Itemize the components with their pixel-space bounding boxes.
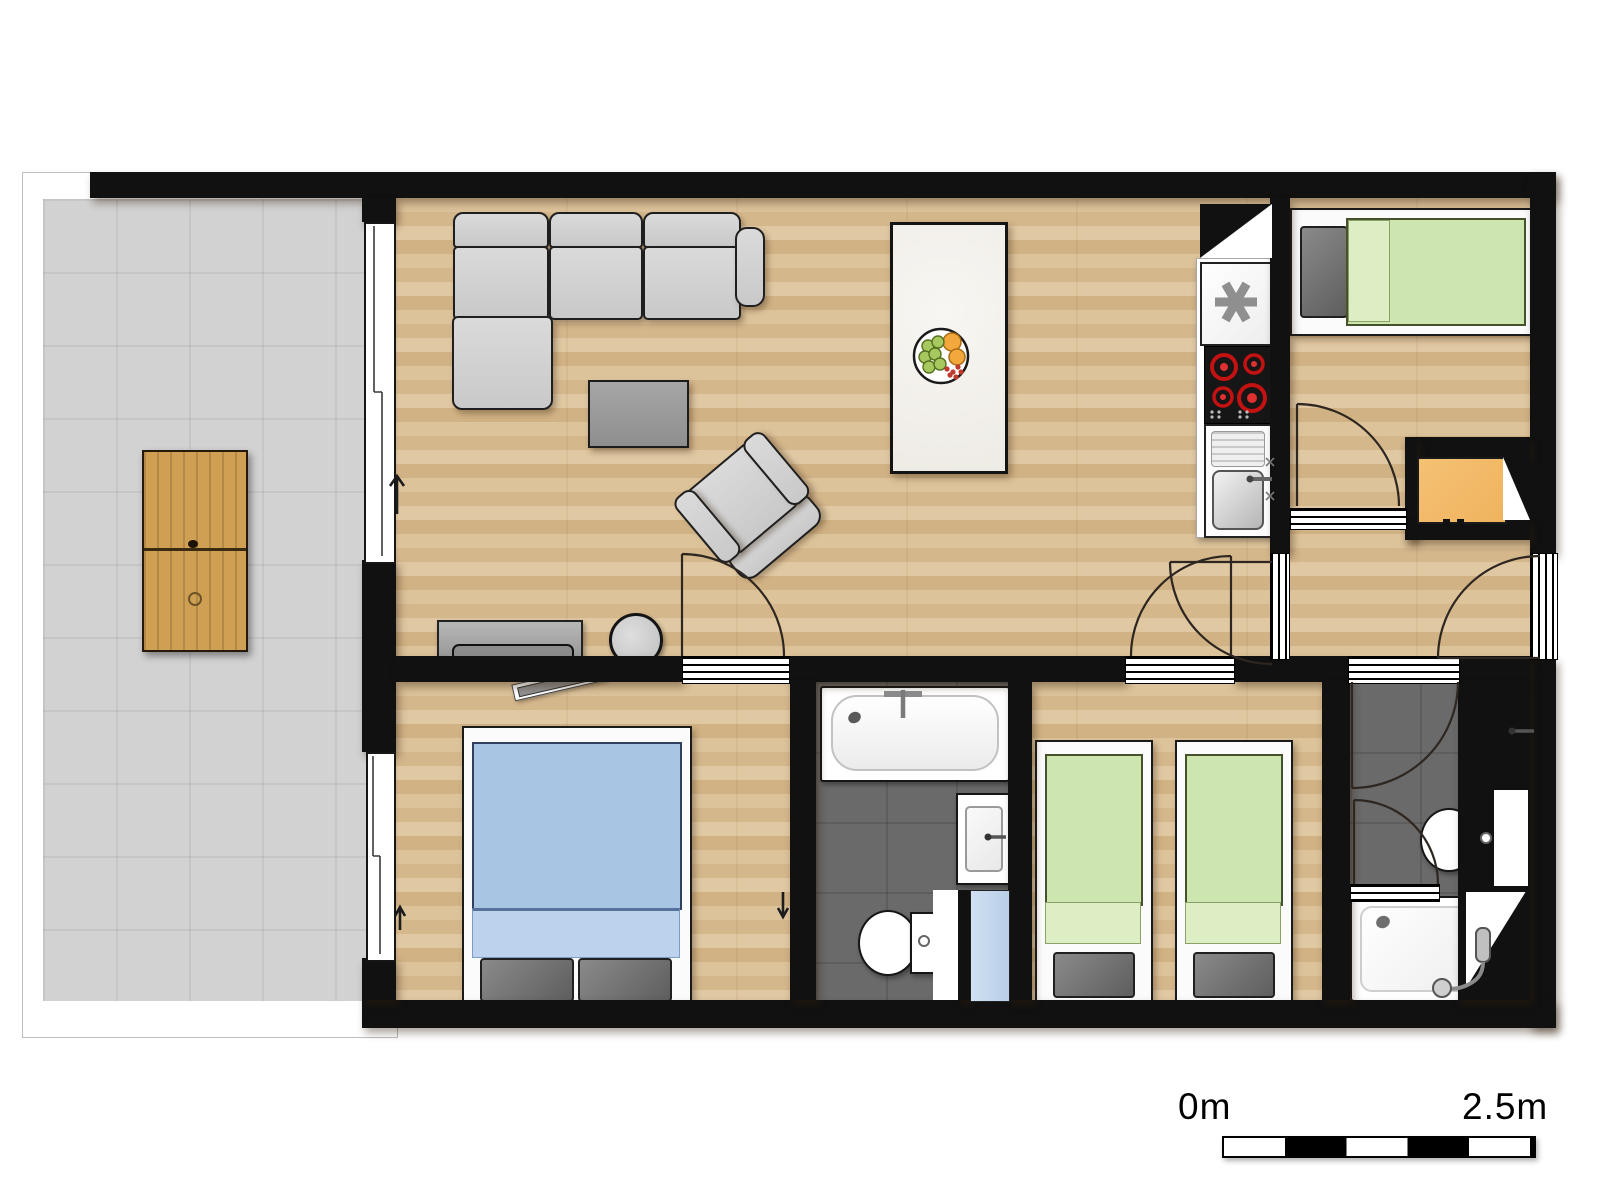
blanket-fold (1045, 902, 1141, 944)
wall-bottom (362, 1000, 1556, 1028)
washbasin (956, 793, 1012, 885)
sofa-seat (453, 246, 549, 320)
bed-blanket (1185, 754, 1283, 906)
sofa-chaise (452, 316, 553, 410)
toilet-bowl (858, 910, 918, 976)
scale-label-start: 0m (1178, 1086, 1231, 1128)
service-shaft (1494, 790, 1528, 886)
door-threshold-twin-bedroom (1125, 656, 1235, 684)
blanket-fold (472, 908, 680, 958)
desk-knob (1457, 519, 1464, 524)
table-knob (188, 592, 202, 606)
kitchen-sink-unit (1204, 424, 1274, 538)
table-knob (188, 540, 198, 548)
wall-mid-b (788, 656, 1125, 682)
sofa-back-cushion (453, 212, 549, 248)
corner-triangle-kitchen (1200, 204, 1272, 258)
single-bed (1175, 740, 1293, 1002)
floor-plan: 0m 2.5m (0, 0, 1600, 1200)
outdoor-dining-table (142, 450, 248, 652)
wall-mid-c (1233, 656, 1348, 682)
scale-label-end: 2.5m (1462, 1086, 1548, 1128)
door-threshold-bedroom-left (682, 656, 790, 684)
door-threshold-ensuite (1348, 656, 1460, 684)
desk (1417, 457, 1507, 524)
blanket-fold (1348, 220, 1390, 322)
door-threshold-bedroom-topright (1290, 508, 1407, 530)
blue-niche (970, 890, 1010, 1002)
wall-niche-left (958, 890, 970, 1000)
wall-left-a (362, 198, 396, 222)
bed-blanket (1045, 754, 1143, 906)
shower-partition (1350, 884, 1440, 902)
pillow (1193, 952, 1275, 998)
double-bed (462, 726, 692, 1002)
corner-triangle-ensuite (1466, 890, 1528, 990)
wall-twin-bath (1322, 682, 1350, 1000)
corner-triangle-desk (1503, 457, 1530, 520)
sofa-back-cushion (549, 212, 643, 248)
wall-left-b (362, 560, 396, 752)
sofa-seat (643, 246, 741, 320)
wall-kitchen (1270, 198, 1290, 553)
blanket-fold (1185, 902, 1281, 944)
bathroom-door-opening (933, 890, 958, 1000)
wall-bath-right (1008, 682, 1032, 890)
sofa-back-cushion (643, 212, 741, 248)
wall-desk-niche-top (1405, 437, 1530, 457)
wall-right-lower (1530, 658, 1556, 1028)
wall-right-upper (1530, 172, 1556, 553)
bed-blanket (472, 742, 682, 910)
wall-niche-right (1008, 890, 1032, 1000)
table-leaf-divider (144, 548, 246, 551)
wall-bedroom-bath (790, 682, 816, 1000)
sofa-armrest (735, 227, 765, 307)
wall-mid-a (396, 656, 682, 682)
sofa-seat (549, 246, 643, 320)
entrance-door-threshold (1530, 553, 1558, 660)
drainboard (1211, 431, 1265, 467)
cooktop (1204, 346, 1274, 424)
pillow (578, 958, 672, 1002)
single-bed (1035, 740, 1153, 1002)
fridge-freezer (1200, 262, 1276, 346)
bedroom-window (366, 752, 396, 962)
single-bed (1290, 208, 1534, 336)
desk-knob (1443, 519, 1450, 524)
pillow (1300, 226, 1348, 318)
scale-bar (1222, 1136, 1536, 1158)
dining-table (890, 222, 1008, 474)
coffee-table (588, 380, 689, 448)
wall-top (90, 172, 1556, 198)
hall-door-jamb (1270, 553, 1290, 660)
wall-left-c (362, 958, 396, 1000)
sliding-door-terrace (364, 222, 396, 564)
pillow (1053, 952, 1135, 998)
wall-mid-d (1458, 656, 1530, 682)
bathtub (820, 686, 1010, 782)
pillow (480, 958, 574, 1002)
sink-basin (1212, 470, 1264, 530)
